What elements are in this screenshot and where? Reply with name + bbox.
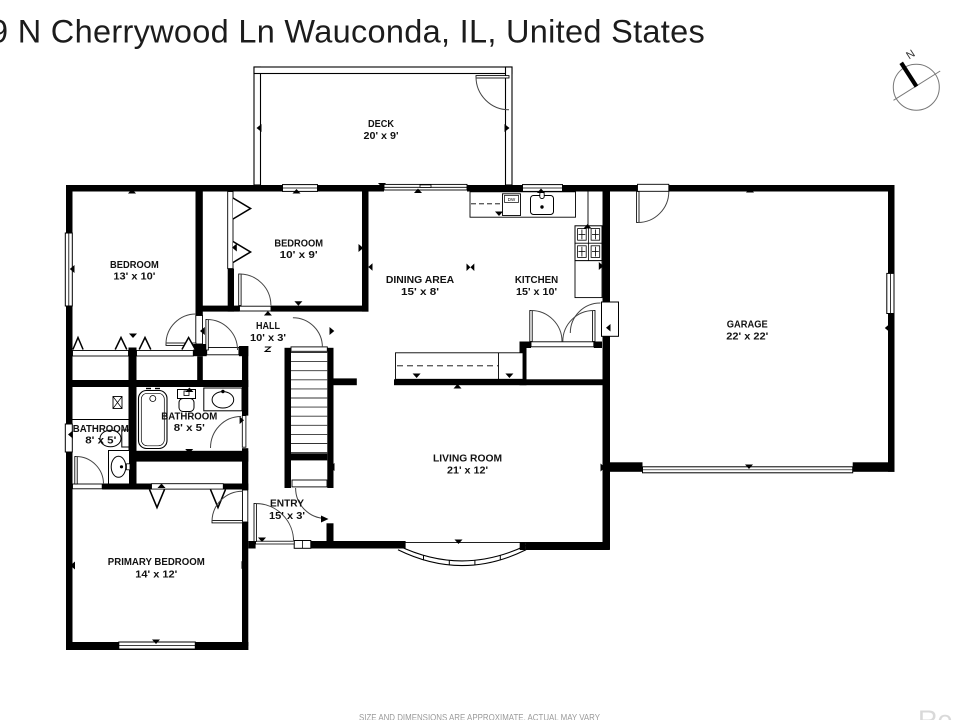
svg-text:10' x 9': 10' x 9': [280, 250, 318, 261]
svg-text:GARAGE: GARAGE: [727, 320, 768, 331]
svg-text:BATHROOM: BATHROOM: [73, 424, 129, 435]
svg-text:15' x 8': 15' x 8': [401, 287, 439, 298]
svg-text:PRIMARY BEDROOM: PRIMARY BEDROOM: [108, 557, 205, 568]
svg-text:DW: DW: [508, 197, 516, 202]
svg-text:9 N Cherrywood Ln Wauconda, IL: 9 N Cherrywood Ln Wauconda, IL, United S…: [0, 14, 705, 50]
svg-text:LIVING ROOM: LIVING ROOM: [433, 454, 502, 465]
svg-text:DECK: DECK: [368, 119, 395, 130]
svg-text:15' x 3': 15' x 3': [269, 511, 305, 522]
svg-text:BATHROOM: BATHROOM: [161, 411, 217, 422]
svg-text:DINING AREA: DINING AREA: [386, 275, 454, 286]
svg-text:8' x 5': 8' x 5': [174, 423, 205, 434]
svg-text:10' x 3': 10' x 3': [250, 333, 286, 344]
svg-text:BEDROOM: BEDROOM: [274, 238, 323, 249]
svg-text:KITCHEN: KITCHEN: [515, 275, 558, 286]
svg-text:HALL: HALL: [256, 321, 280, 332]
svg-text:Re: Re: [918, 705, 953, 720]
svg-text:8' x 5': 8' x 5': [85, 436, 116, 447]
svg-text:14' x 12': 14' x 12': [135, 569, 177, 580]
svg-text:ENTRY: ENTRY: [270, 499, 304, 510]
svg-text:15' x 10': 15' x 10': [516, 287, 557, 298]
svg-text:22' x 22': 22' x 22': [726, 332, 768, 343]
svg-text:BEDROOM: BEDROOM: [110, 260, 159, 271]
svg-text:SIZE AND DIMENSIONS ARE APPROX: SIZE AND DIMENSIONS ARE APPROXIMATE, ACT…: [359, 713, 600, 720]
svg-text:21' x 12': 21' x 12': [447, 465, 488, 476]
svg-text:13' x 10': 13' x 10': [113, 272, 155, 283]
svg-text:20' x 9': 20' x 9': [364, 131, 399, 142]
